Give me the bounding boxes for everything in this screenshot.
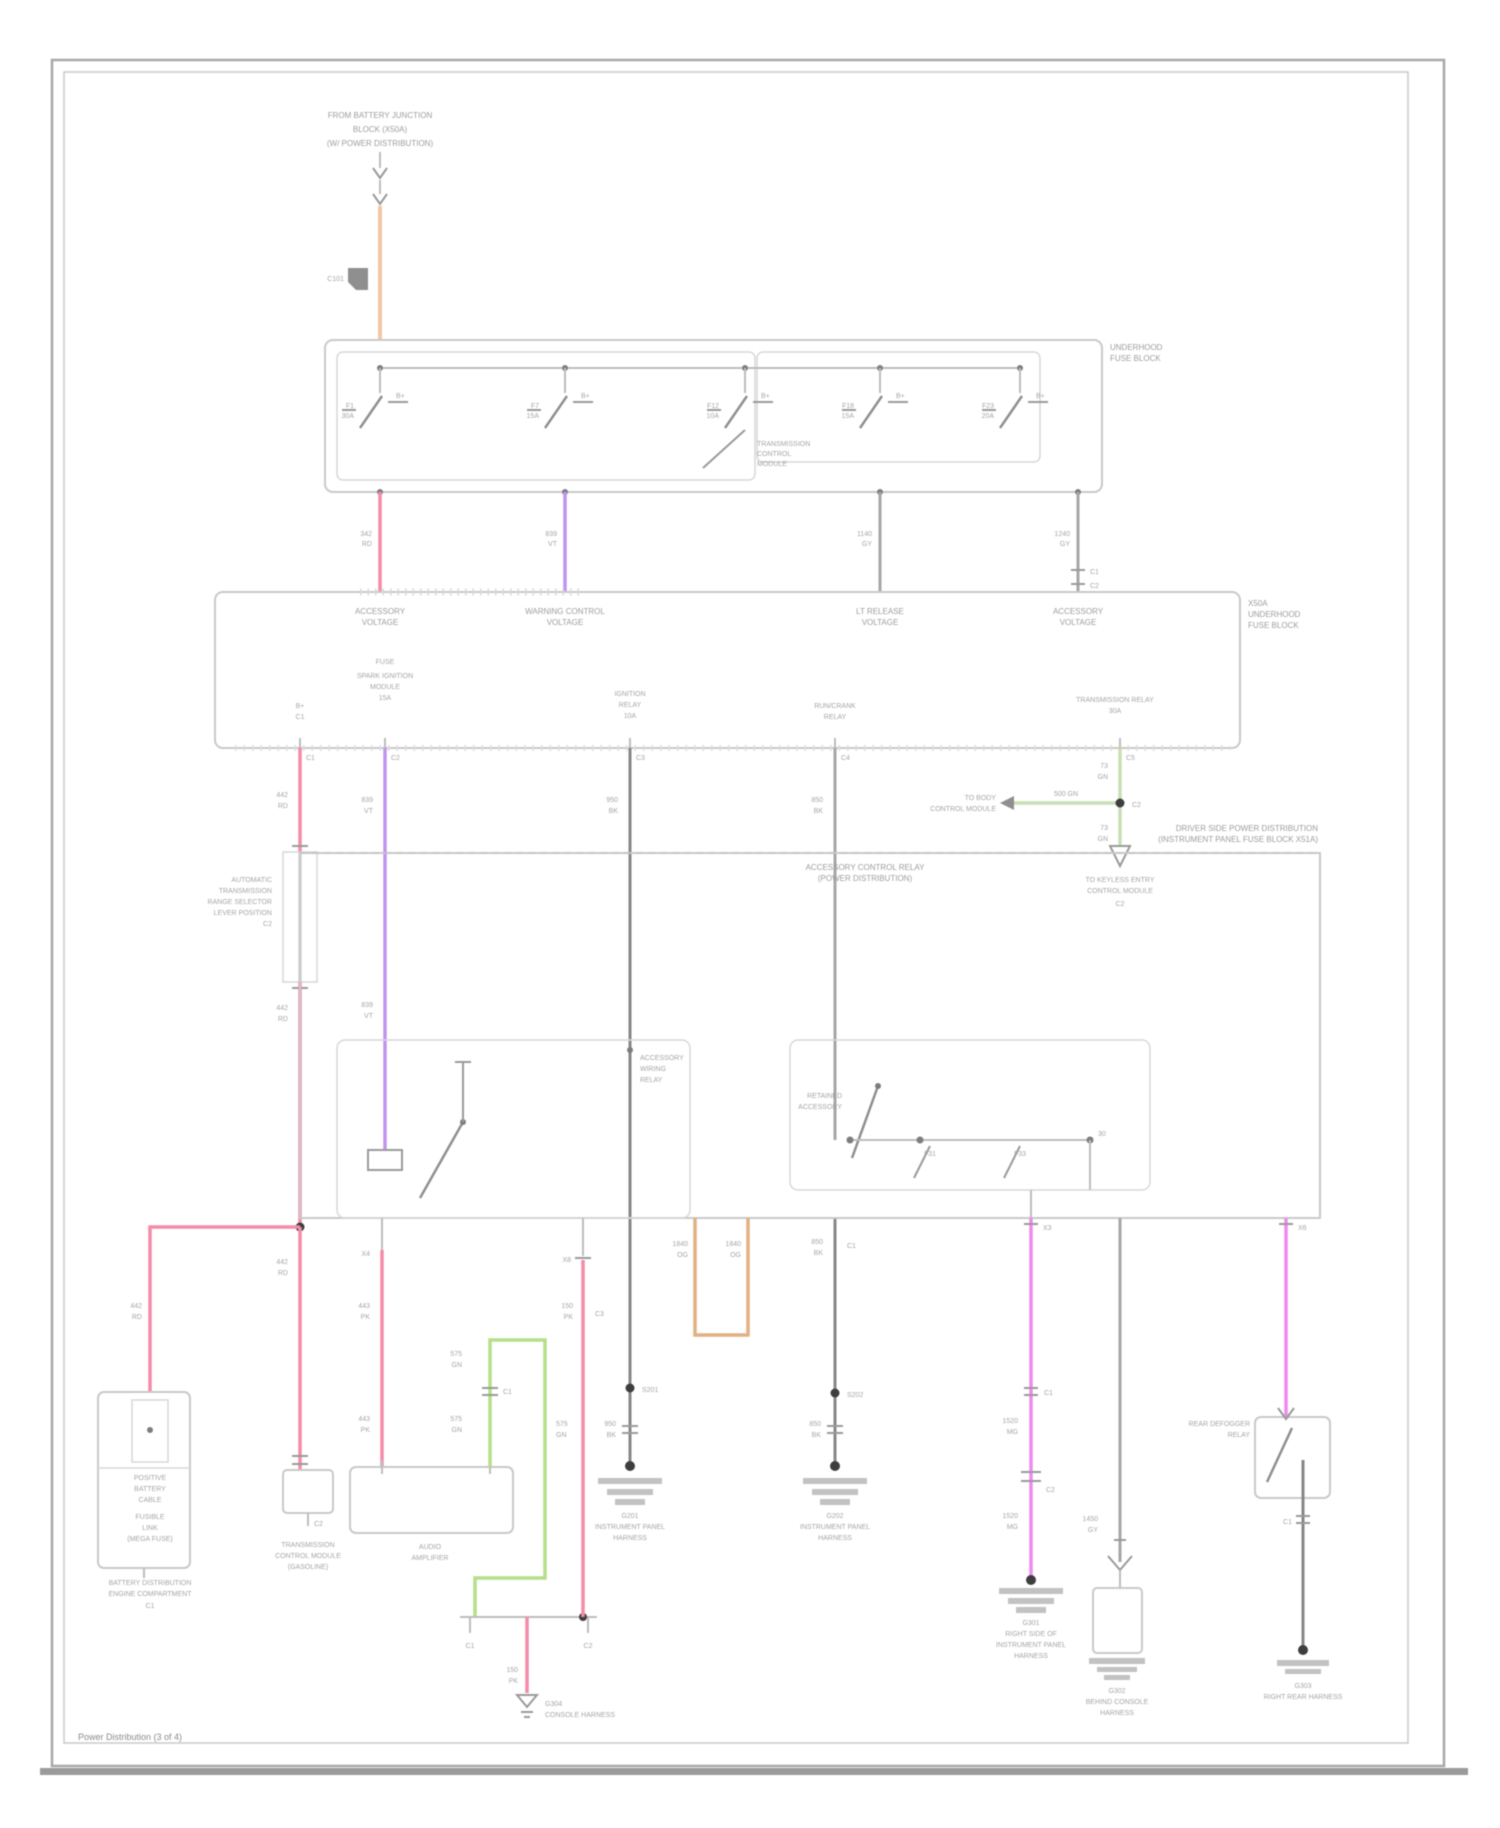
d5-wire-label-b: GN — [1098, 774, 1109, 781]
d4-splice-label: S202 — [847, 1392, 863, 1399]
mg2-relay-label-a: REAR DEFOGGER — [1189, 1421, 1250, 1428]
g304-label2: CONSOLE HARNESS — [545, 1712, 615, 1719]
d1-pin-label: C2 — [314, 1521, 323, 1528]
ctr-wire-label2-b: PK — [361, 1427, 371, 1434]
ground-dot — [1026, 1575, 1036, 1585]
ctr-drop-label-a: 150 — [506, 1667, 518, 1674]
relay-coil-symbol — [368, 1150, 402, 1170]
fuse2-label-b: 15A — [527, 413, 540, 420]
left-relay-label1: ACCESSORY — [640, 1055, 684, 1062]
wire4-conn-label1: C1 — [1090, 569, 1099, 576]
wire1-label-b: RD — [362, 541, 372, 548]
orange-label1-b: OG — [677, 1252, 688, 1259]
g301-label2: RIGHT SIDE OF — [1005, 1631, 1057, 1638]
g301-label3: INSTRUMENT PANEL — [996, 1642, 1066, 1649]
jb-pin2-label: C2 — [391, 755, 400, 762]
jb-top-label2a: WARNING CONTROL — [525, 607, 605, 616]
jb-b2-label-d: 15A — [379, 695, 392, 702]
fuse1-label-a: F1 — [346, 403, 354, 410]
d1-wire-label-b: RD — [278, 803, 288, 810]
d4-conn-label: C1 — [847, 1243, 856, 1250]
inline-connector-icon — [373, 168, 387, 178]
audio-box-label2: AMPLIFIER — [412, 1555, 449, 1562]
gy2-wire-label-a: 1450 — [1082, 1516, 1098, 1523]
green-label3-b: GN — [556, 1432, 567, 1439]
fuse5-label-b: 20A — [982, 413, 995, 420]
jb-b4-label-b: RELAY — [824, 714, 847, 721]
bat-label-b3: (MEGA FUSE) — [127, 1536, 173, 1543]
relay-switch-symbol — [420, 1062, 471, 1198]
bat-label-a1: POSITIVE — [134, 1475, 167, 1482]
right-relay-label1: RETAINED — [807, 1093, 842, 1100]
fuse5-label-r: B+ — [1036, 393, 1045, 400]
junction-dot — [847, 1137, 854, 1144]
wire4-label-b: GY — [1060, 541, 1070, 548]
g201-label2: INSTRUMENT PANEL — [595, 1524, 665, 1531]
wire3-label-a: 1140 — [857, 531, 872, 538]
bus-stub-label2: C2 — [584, 1643, 593, 1650]
d1-connector-label4: LEVER POSITION — [214, 910, 272, 917]
d1-connector-label2: TRANSMISSION — [219, 888, 272, 895]
mg1-pin-label: X3 — [1043, 1225, 1052, 1232]
d4-wire-label-b: BK — [814, 808, 824, 815]
splice-dot — [1116, 799, 1125, 808]
d4-drop-label-b: BK — [814, 1250, 824, 1257]
jb-b5-label-a: TRANSMISSION RELAY — [1076, 697, 1154, 704]
small-ground-symbol — [517, 1695, 537, 1717]
ctr-wire-label-a: 443 — [358, 1303, 370, 1310]
mg1-wire-label-a: 1520 — [1002, 1418, 1018, 1425]
p583-conn-label: C3 — [595, 1311, 604, 1318]
fuse4-label-a: F18 — [842, 403, 854, 410]
fuse-block-inner-box — [337, 352, 755, 480]
ground-symbol-g303 — [1277, 1660, 1329, 1674]
connector-flag-label: C101 — [327, 276, 344, 283]
d5-branch-label: 500 GN — [1054, 791, 1078, 798]
d1-wire-label3-a: 442 — [276, 1259, 288, 1266]
d1-component-label2: CONTROL MODULE — [275, 1553, 341, 1560]
orange-label2-a: 1840 — [725, 1241, 741, 1248]
ip-fuse-block-box — [300, 853, 1320, 1218]
d1-wire-label-a: 442 — [276, 792, 288, 799]
jb-b3-label-c: 10A — [624, 713, 637, 720]
mg1-wire-label2-a: 1520 — [1002, 1513, 1018, 1520]
audio-amplifier-box — [350, 1467, 513, 1533]
ip-inner-label2: (POWER DISTRIBUTION) — [818, 874, 913, 883]
down-arrow-icon — [1110, 846, 1130, 866]
d3-splice-label: S201 — [642, 1387, 658, 1394]
ip-box-label2: (INSTRUMENT PANEL FUSE BLOCK X51A) — [1158, 835, 1318, 844]
fuse1-label-b: 30A — [342, 413, 355, 420]
ground-dot — [1298, 1645, 1308, 1655]
d1-wire-label2-b: RD — [278, 1016, 288, 1023]
jb-b3-label-a: IGNITION — [614, 691, 645, 698]
jb-right-label3: FUSE BLOCK — [1248, 621, 1299, 630]
d1-connector-label1: AUTOMATIC — [231, 877, 272, 884]
green-label-b: GN — [452, 1362, 463, 1369]
wire3-label-b: GY — [862, 541, 872, 548]
jb-b1-label-b: C1 — [296, 714, 305, 721]
ground-symbol-g201 — [598, 1478, 662, 1505]
gy2-wire-label-b: GY — [1088, 1527, 1098, 1534]
d5-conn-label2: C2 — [1116, 901, 1125, 908]
jb-pin4-label: C4 — [841, 755, 850, 762]
junction-dot — [147, 1427, 153, 1433]
wire1-label-a: 342 — [360, 531, 372, 538]
wire4-conn-label2: C2 — [1090, 583, 1099, 590]
d5-conn-label: C2 — [1132, 802, 1141, 809]
connector-flag-icon — [348, 268, 368, 290]
g303-label2: RIGHT REAR HARNESS — [1264, 1694, 1343, 1701]
wiring-diagram-page: FROM BATTERY JUNCTION BLOCK (X50A) (W/ P… — [0, 0, 1500, 1828]
fuse2-label-r: B+ — [581, 393, 590, 400]
jb-top-label1b: VOLTAGE — [362, 618, 399, 627]
jb-top-label3b: VOLTAGE — [862, 618, 899, 627]
relay-fuse-label2: F33 — [1014, 1151, 1026, 1158]
green-conn-label: C1 — [503, 1389, 512, 1396]
mg1-conn-label1: C1 — [1044, 1390, 1053, 1397]
g302-label2: BEHIND CONSOLE — [1086, 1699, 1149, 1706]
d2-wire-label2-b: VT — [364, 1013, 374, 1020]
mg2-conn-label: C1 — [1283, 1519, 1292, 1526]
fuse2-label-a: F7 — [531, 403, 539, 410]
d4-wire-label-a: 850 — [811, 797, 823, 804]
d5-destination2-label2: CONTROL MODULE — [1087, 888, 1153, 895]
junction-dot — [627, 1047, 633, 1053]
d5-destination2-label1: TO KEYLESS ENTRY — [1086, 877, 1155, 884]
g201-label3: HARNESS — [613, 1535, 647, 1542]
d4-drop-label-a: 850 — [811, 1239, 823, 1246]
bat-label-b2: LINK — [142, 1525, 158, 1532]
relay-switch-symbol2 — [852, 1083, 881, 1158]
relay-fuse-label3: 30 — [1098, 1131, 1106, 1138]
p583-label-a: 150 — [561, 1303, 573, 1310]
tcm-connector-box — [283, 1470, 333, 1513]
left-arrow-icon — [1000, 796, 1014, 810]
g301-label1: G301 — [1022, 1620, 1039, 1627]
bat-label-b1: FUSIBLE — [135, 1514, 165, 1521]
d1-component-label1: TRANSMISSION — [281, 1542, 334, 1549]
bat-label-c1: BATTERY DISTRIBUTION — [109, 1580, 192, 1587]
d2-wire-label-a: 839 — [361, 797, 373, 804]
ground-dot — [625, 1461, 635, 1471]
jb-b5-label-b: 30A — [1109, 708, 1122, 715]
green-label-a: 575 — [450, 1351, 462, 1358]
d1-branch-label-a: 442 — [130, 1303, 142, 1310]
relay-fuse-label1: F31 — [924, 1151, 936, 1158]
fuse4-label-b: 15A — [842, 413, 855, 420]
g202-label2: INSTRUMENT PANEL — [800, 1524, 870, 1531]
jb-top-label4b: VOLTAGE — [1060, 618, 1097, 627]
jb-b2-label-c: MODULE — [370, 684, 400, 691]
inline-connector-half-left — [283, 852, 299, 982]
g301-label4: HARNESS — [1014, 1653, 1048, 1660]
bat-label-c3: C1 — [146, 1603, 155, 1610]
fuse1-label-r: B+ — [396, 393, 405, 400]
fuse3-label-a: F12 — [707, 403, 719, 410]
orange-label1-a: 1840 — [672, 1241, 688, 1248]
d5-wire-label2-a: 73 — [1100, 825, 1108, 832]
d3-wire-label2-a: 950 — [604, 1421, 616, 1428]
inline-connector-icon — [373, 194, 387, 204]
mg1-wire-label-b: MG — [1007, 1429, 1018, 1436]
orange-loop-wire — [695, 1218, 748, 1335]
d4-wire-label2-a: 850 — [809, 1421, 821, 1428]
page-inner-border — [64, 72, 1408, 1743]
green-loop-wire — [475, 1340, 545, 1617]
power-distribution-schematic: FROM BATTERY JUNCTION BLOCK (X50A) (W/ P… — [0, 0, 1500, 1828]
top-feed-label-line1: FROM BATTERY JUNCTION — [328, 111, 433, 120]
mg2-pin-label: X6 — [1298, 1225, 1307, 1232]
audio-box-label1: AUDIO — [419, 1544, 442, 1551]
ip-box-label1: DRIVER SIDE POWER DISTRIBUTION — [1176, 824, 1318, 833]
diagram-canvas: FROM BATTERY JUNCTION BLOCK (X50A) (W/ P… — [0, 0, 1500, 1828]
mg1-conn-label2: C2 — [1046, 1487, 1055, 1494]
jb-right-label2: UNDERHOOD — [1248, 610, 1301, 619]
wire2-label-a: 839 — [545, 531, 557, 538]
wire2-label-b: VT — [548, 541, 558, 548]
d1-connector-label5: C2 — [263, 921, 272, 928]
fuse3-extra-label3: MODULE — [757, 461, 787, 468]
bat-label-a3: CABLE — [139, 1497, 162, 1504]
fuse5-label-a: F23 — [982, 403, 994, 410]
d2-wire-label2-a: 839 — [361, 1002, 373, 1009]
jb-b4-label-a: RUN/CRANK — [814, 703, 856, 710]
inline-connector-half-right — [301, 852, 317, 982]
page-bottom-shadow — [40, 1768, 1468, 1775]
ctr-pin-label: X4 — [361, 1251, 370, 1258]
d1-wire-label2-a: 442 — [276, 1005, 288, 1012]
d1-branch-label-b: RD — [132, 1314, 142, 1321]
jb-top-label4a: ACCESSORY — [1053, 607, 1104, 616]
ground-dot — [830, 1461, 840, 1471]
fuse3-label-b: 10A — [707, 413, 720, 420]
d1-wire-label3-b: RD — [278, 1270, 288, 1277]
left-relay-label3: RELAY — [640, 1077, 663, 1084]
jb-top-label2b: VOLTAGE — [547, 618, 584, 627]
d2-wire-label-b: VT — [364, 808, 374, 815]
ground-symbol-g202 — [803, 1478, 867, 1505]
g202-label3: HARNESS — [818, 1535, 852, 1542]
right-relay-label2: ACCESSORY — [798, 1104, 842, 1111]
green-label3-a: 575 — [556, 1421, 568, 1428]
wire4-label-a: 1240 — [1054, 531, 1070, 538]
ctr-drop-label-b: PK — [509, 1678, 519, 1685]
splice-dot — [831, 1389, 840, 1398]
fuse-block-corner-label1: UNDERHOOD — [1110, 343, 1163, 352]
fuse3-extra-label2: CONTROL — [757, 451, 791, 458]
jb-b2-label-b: SPARK IGNITION — [357, 673, 413, 680]
jb-b1-label-a: B+ — [296, 703, 305, 710]
g303-label1: G303 — [1294, 1683, 1311, 1690]
left-relay-label2: WIRING — [640, 1066, 666, 1073]
green-label2-a: 575 — [450, 1416, 462, 1423]
junction-dot — [917, 1137, 924, 1144]
d5-destination-label2: CONTROL MODULE — [930, 806, 996, 813]
p583-label-b: PK — [564, 1314, 574, 1321]
d3-wire-label-a: 950 — [606, 797, 618, 804]
g302-label3: HARNESS — [1100, 1710, 1134, 1717]
g202-label1: G202 — [826, 1513, 843, 1520]
orange-label2-b: OG — [730, 1252, 741, 1259]
pink-branch-to-battery-box — [150, 1227, 300, 1392]
mg1-wire-label2-b: MG — [1007, 1524, 1018, 1531]
green-label2-b: GN — [452, 1427, 463, 1434]
top-feed-label-line3: (W/ POWER DISTRIBUTION) — [327, 139, 434, 148]
mg2-relay-label-b: RELAY — [1228, 1432, 1251, 1439]
ctr-wire-label-b: PK — [361, 1314, 371, 1321]
page-caption: Power Distribution (3 of 4) — [78, 1732, 182, 1742]
d4-wire-label2-b: BK — [812, 1432, 822, 1439]
ctr-wire-label2-a: 443 — [358, 1416, 370, 1423]
jb-b3-label-b: RELAY — [619, 702, 642, 709]
jb-b2-label-a: FUSE — [376, 659, 395, 666]
relay-blade — [1267, 1428, 1292, 1482]
jb-pin3-label: C3 — [636, 755, 645, 762]
bat-label-c2: ENGINE COMPARTMENT — [109, 1591, 193, 1598]
right-relay-box — [790, 1040, 1150, 1190]
d5-wire-label-a: 73 — [1100, 763, 1108, 770]
fuse3-label-r: B+ — [761, 393, 770, 400]
fuse-block-corner-label2: FUSE BLOCK — [1110, 354, 1161, 363]
d5-destination-label1: TO BODY — [965, 795, 997, 802]
g302-label1: G302 — [1108, 1688, 1125, 1695]
g201-label1: G201 — [621, 1513, 638, 1520]
jb-top-label3a: LT RELEASE — [856, 607, 904, 616]
ground-symbol-g301 — [999, 1588, 1063, 1613]
d5-wire-label2-b: GN — [1098, 836, 1109, 843]
bus-stub-label1: C1 — [466, 1643, 475, 1650]
fuse3-extra-label1: TRANSMISSION — [757, 441, 810, 448]
ground-connector-box — [1093, 1588, 1142, 1653]
d3-wire-label-b: BK — [609, 808, 619, 815]
fuse4-label-r: B+ — [896, 393, 905, 400]
ground-symbol-g302 — [1089, 1658, 1145, 1680]
jb-right-label1: X50A — [1248, 599, 1268, 608]
jb-pin1-label: C1 — [306, 755, 315, 762]
splice-dot — [626, 1384, 635, 1393]
p583-pin-label: X8 — [562, 1257, 571, 1264]
bat-label-a2: BATTERY — [134, 1486, 166, 1493]
jb-top-label1a: ACCESSORY — [355, 607, 406, 616]
left-relay-box — [337, 1040, 690, 1218]
d1-component-label3: (GASOLINE) — [288, 1564, 328, 1571]
top-feed-label-line2: BLOCK (X50A) — [353, 125, 408, 134]
d3-wire-label2-b: BK — [607, 1432, 617, 1439]
d1-connector-label3: RANGE SELECTOR — [208, 899, 272, 906]
g304-label1: G304 — [545, 1701, 562, 1708]
ip-inner-label1: ACCESSORY CONTROL RELAY — [806, 863, 926, 872]
jb-pin5-label: C5 — [1126, 755, 1135, 762]
